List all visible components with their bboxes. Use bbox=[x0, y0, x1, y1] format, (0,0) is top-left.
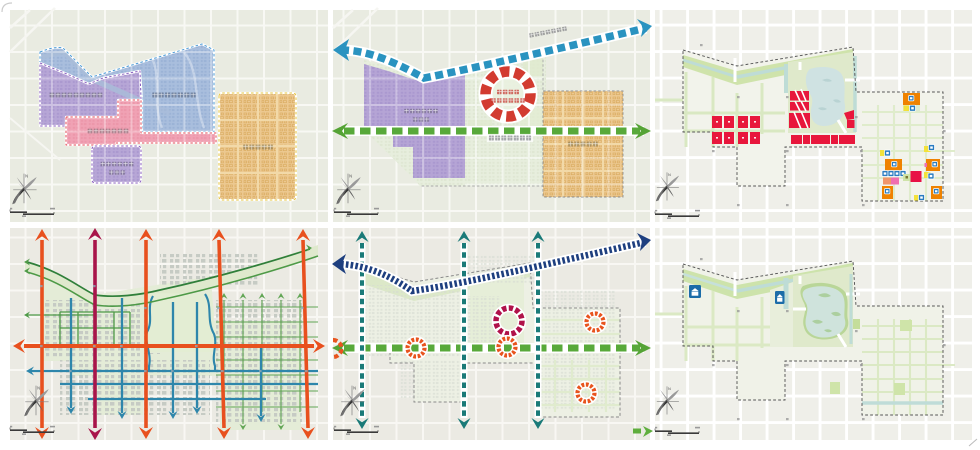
svg-text:N: N bbox=[37, 386, 40, 391]
svg-text:N: N bbox=[353, 386, 356, 391]
svg-text:N: N bbox=[668, 172, 671, 177]
svg-text:N: N bbox=[349, 174, 352, 179]
svg-text:N: N bbox=[25, 174, 28, 179]
svg-text:N: N bbox=[668, 386, 671, 391]
